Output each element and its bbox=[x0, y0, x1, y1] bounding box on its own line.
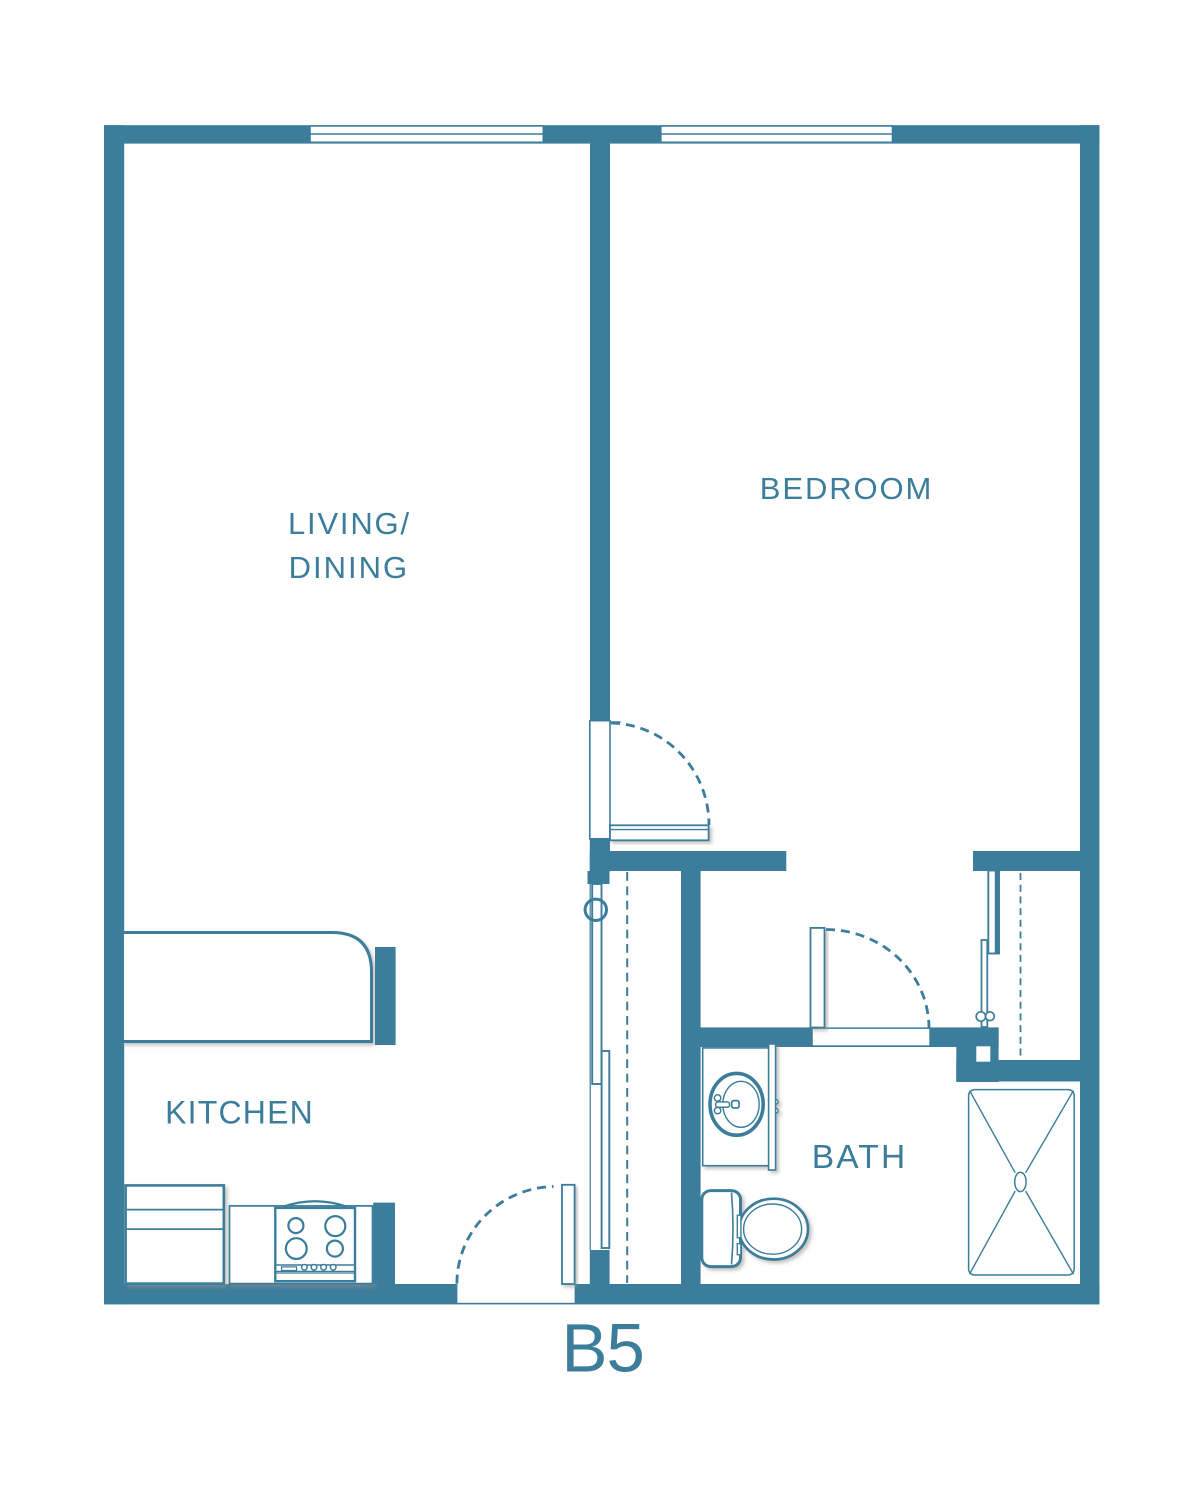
svg-text:KITCHEN: KITCHEN bbox=[165, 1095, 314, 1131]
svg-text:DINING: DINING bbox=[289, 550, 410, 585]
svg-text:LIVING/: LIVING/ bbox=[288, 506, 411, 541]
svg-text:BEDROOM: BEDROOM bbox=[760, 471, 933, 506]
svg-text:BATH: BATH bbox=[812, 1139, 908, 1176]
svg-text:B5: B5 bbox=[562, 1309, 644, 1386]
